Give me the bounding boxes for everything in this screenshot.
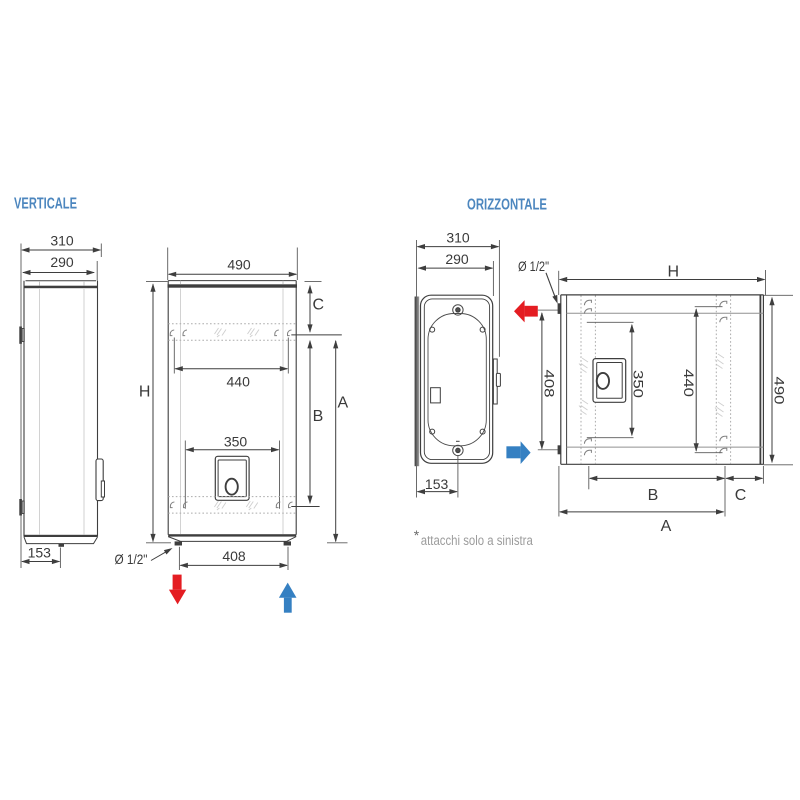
svg-text:C: C [735, 487, 747, 504]
svg-text:A: A [661, 518, 672, 535]
svg-text:290: 290 [50, 254, 74, 270]
svg-text:310: 310 [50, 233, 74, 249]
svg-text:H: H [139, 384, 151, 401]
svg-text:A: A [337, 395, 348, 412]
svg-text:490: 490 [771, 377, 787, 405]
svg-text:310: 310 [446, 230, 470, 246]
svg-text:408: 408 [222, 548, 246, 564]
svg-text:440: 440 [227, 374, 251, 390]
svg-text:VERTICALE: VERTICALE [14, 196, 77, 213]
svg-text:350: 350 [631, 370, 647, 398]
svg-text:153: 153 [28, 545, 52, 561]
svg-text:B: B [648, 487, 659, 504]
svg-text:153: 153 [425, 476, 449, 492]
svg-text:440: 440 [681, 369, 697, 397]
svg-text:attacchi solo a sinistra: attacchi solo a sinistra [421, 533, 533, 549]
svg-text:C: C [313, 297, 325, 314]
svg-text:Ø 1/2": Ø 1/2" [518, 258, 549, 274]
svg-text:H: H [668, 264, 680, 281]
svg-text:290: 290 [445, 251, 469, 267]
svg-text:ORIZZONTALE: ORIZZONTALE [467, 197, 547, 214]
svg-text:350: 350 [224, 434, 248, 450]
svg-text:408: 408 [541, 370, 557, 398]
svg-text:B: B [313, 408, 324, 425]
svg-text:490: 490 [227, 257, 251, 273]
svg-text:Ø 1/2": Ø 1/2" [115, 551, 148, 567]
svg-text:*: * [414, 527, 420, 543]
